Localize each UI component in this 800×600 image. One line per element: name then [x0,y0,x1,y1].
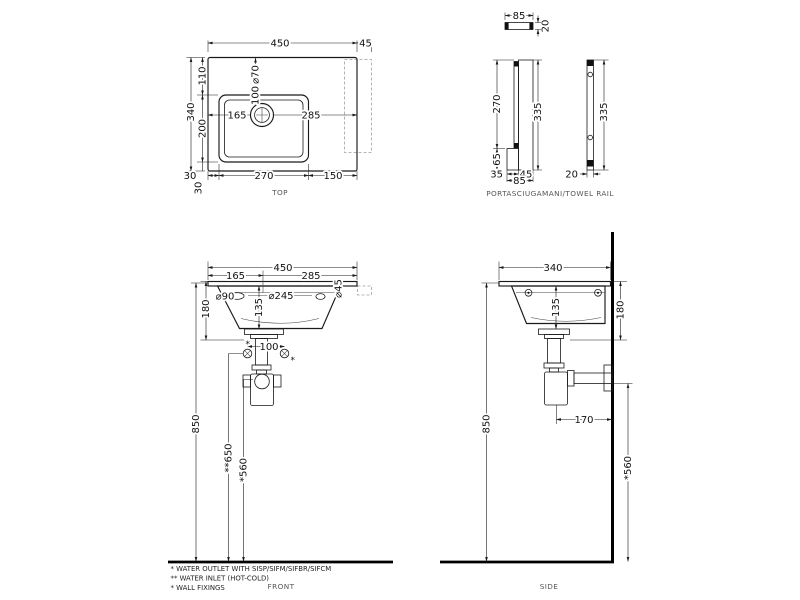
rail-screw-hole-top [588,72,593,77]
trap-neck [257,370,267,374]
dim-hole-setback: 100 [251,86,262,105]
dim-35: 35 [490,170,503,181]
dim-135f: 135 [254,298,265,317]
footnote-wall-fixings: * WALL FIXINGS [171,584,225,592]
rail-front-bar-cap-bottom [514,143,519,148]
towel-rail-caption: PORTASCIUGAMANI/TOWEL RAIL [486,189,614,198]
footnote-water-outlet: * WATER OUTLET WITH SISP/SIFM/SIFBR/SIFC… [171,565,332,573]
dim-245: ⌀245 [268,291,293,302]
dim-100f: 100 [259,342,278,353]
water-inlet-left-cross [245,351,251,357]
trap-inspection-cap [255,374,270,389]
dim-hole-diameter: ⌀70 [251,65,262,84]
trap-outlet-nut [568,371,575,387]
top-view: ⌀70 100 165 285 450 45 340 110 200 30 30… [184,39,372,198]
dim-45: 45 [359,39,372,50]
dim-20-side: 20 [565,170,578,181]
outlet-pipe [574,373,612,384]
trap-nut-left [243,375,251,387]
side-view: 340 135 180 170 850 *560 SIDE [440,232,634,591]
dim-850s: 850 [482,414,493,433]
top-ext-lines [208,41,372,53]
front-view-caption: FRONT [268,582,295,591]
drain-flange [245,329,284,335]
rail-front-bar-cap-top [514,62,519,67]
dim-30-bottom: 30 [194,182,205,195]
rail-top-cap-left [505,23,509,30]
drain-flange-side [539,329,570,335]
dim-135s: 135 [551,298,562,317]
water-inlet-right-cross [282,351,288,357]
dim-45-hole: ⌀45 [334,279,345,298]
dim-150: 150 [323,171,342,182]
dim-270: 270 [254,171,273,182]
dim-170: 170 [574,415,593,426]
rail-front-foot [507,149,519,171]
dim-340s: 340 [543,263,562,274]
bowl-outer [219,95,309,162]
technical-drawing-sheet: ⌀70 100 165 285 450 45 340 110 200 30 30… [0,0,800,600]
rail-top-cap-right [529,23,533,30]
bowl-curve-front [241,319,319,324]
dim-85: 85 [513,176,526,187]
rail-side-cap-bottom [587,160,594,167]
dim-90: ⌀90 [216,292,235,303]
rail-front-bar [514,62,519,149]
bowl-curve-side [531,318,601,322]
footnote-water-inlet: ** WATER INLET (HOT-COLD) [171,575,270,583]
dim-560s: *560 [623,456,634,480]
fixing-hole-front-dot [527,292,529,294]
rail-side-cap-top [587,60,594,66]
towel-rail-hidden-outline [345,60,372,153]
rail-front-plate [519,60,534,170]
front-view: ⌀90 ⌀245 ⌀45 450 165 285 180 135 100 [168,262,393,592]
basin-slab-side [499,282,611,287]
dim-200: 200 [198,119,209,138]
drawing-canvas: ⌀70 100 165 285 450 45 340 110 200 30 30… [0,0,800,600]
drain-tailpipe-side [548,339,561,364]
small-hole [316,294,325,300]
dim-165f: 165 [226,271,245,282]
side-view-caption: SIDE [540,582,559,591]
trap-body [251,374,274,406]
dim-180s: 180 [616,300,627,319]
dim-270: 270 [492,94,503,113]
drain-flange-inner-side [545,335,564,339]
fixing-hole-back-dot [597,292,599,294]
towel-rail-hidden-front [358,286,372,295]
dim-165: 165 [227,111,246,122]
faucet-hole-cross [256,108,268,122]
fixing-asterisk-left: * [246,340,251,350]
dim-65: 65 [492,153,503,166]
rail-screw-hole-bottom [588,135,593,140]
bowl-inner-rim [225,100,304,157]
dim-285f: 285 [301,271,320,282]
dim-30-left: 30 [184,171,197,182]
dim-110: 110 [198,66,209,85]
dim-180f: 180 [201,299,212,318]
rail-top-section [505,23,533,30]
dim-335-front: 335 [533,102,544,121]
trap-nut-top [252,365,271,370]
dim-450f: 450 [273,263,292,274]
trap-neck-side [550,368,559,372]
top-view-caption: TOP [271,188,288,197]
drain-flange-inner [251,335,278,339]
trap-body-side [545,372,568,405]
towel-rail-view: 85 20 270 65 335 35 45 85 335 20 [486,11,614,198]
dim-560f: *560 [239,458,250,482]
dim-450: 450 [270,39,289,50]
dim-650f: **650 [224,443,235,472]
dim-85-top: 85 [513,11,526,22]
dim-850f: 850 [191,414,202,433]
dim-335-side: 335 [599,102,610,121]
trap-nut-top-side [544,363,564,368]
fixing-asterisk-right: * [291,356,296,366]
dim-285: 285 [301,111,320,122]
trap-nut-right [274,375,282,387]
footnotes: * WATER OUTLET WITH SISP/SIFM/SIFBR/SIFC… [171,565,332,592]
dim-20-top: 20 [541,20,552,33]
dim-340: 340 [186,102,197,121]
